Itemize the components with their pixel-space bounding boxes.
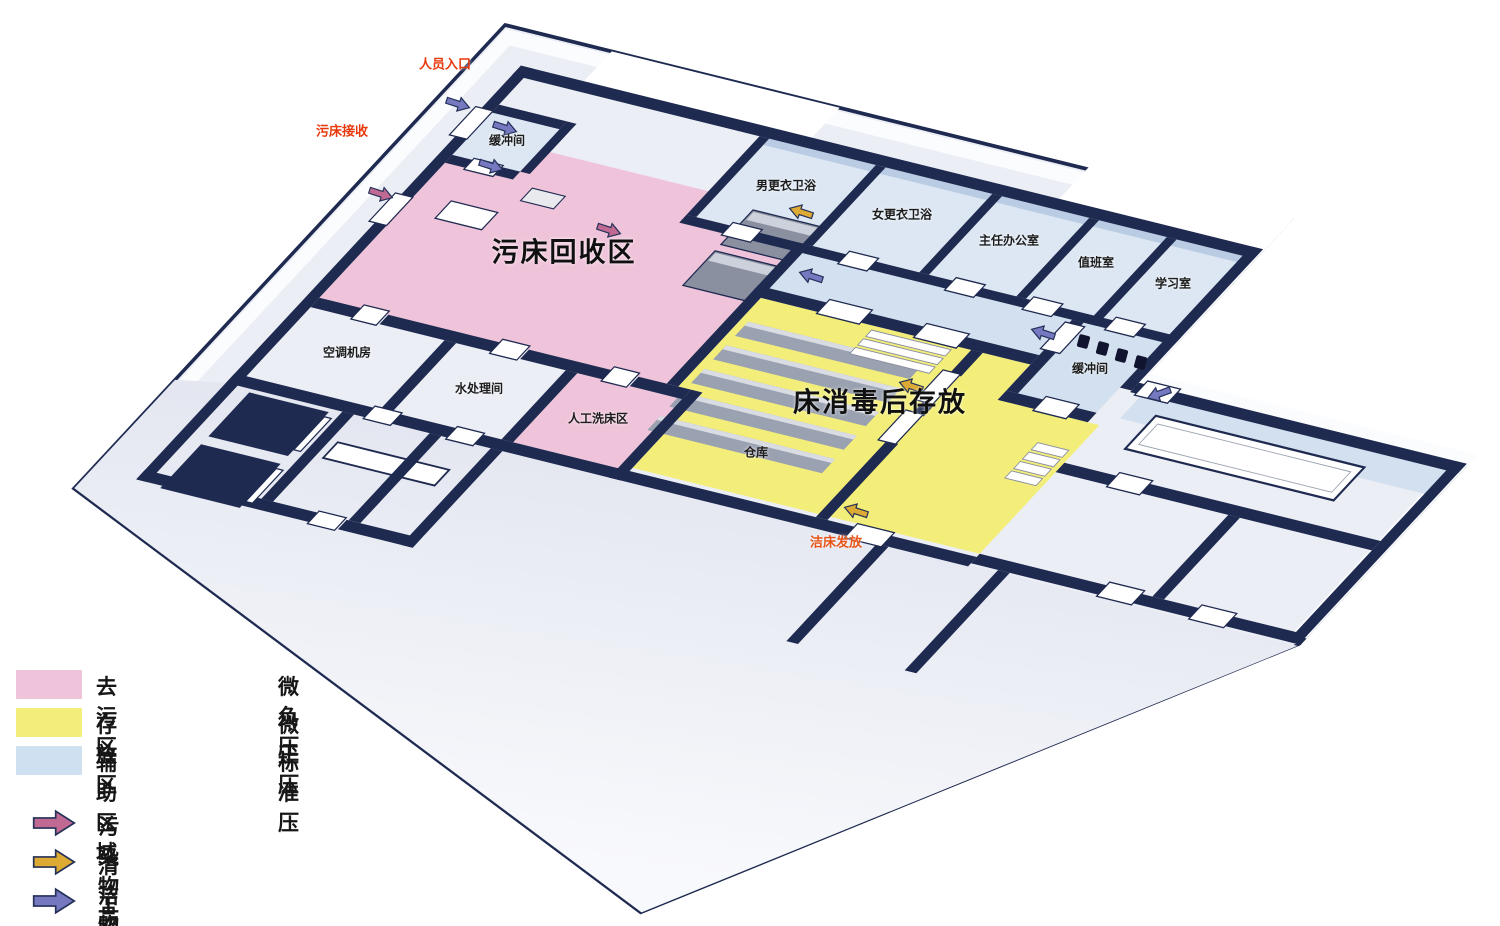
legend-swatch-storage bbox=[16, 708, 82, 737]
zone-label-dirty-bed-recycling: 污床回收区 bbox=[492, 231, 637, 270]
clean-bed-dispatch-label: 洁床发放 bbox=[810, 532, 862, 551]
dirty-bed-receiving-label: 污床接收 bbox=[316, 121, 368, 140]
room-label-mens-changing: 男更衣卫浴 bbox=[756, 177, 816, 194]
floorplan-stage: 人员入口 污床接收 洁床发放 缓冲间 污床回收区 男更衣卫浴 女更衣卫浴 主任办… bbox=[0, 0, 1500, 926]
room-label-warehouse: 仓库 bbox=[744, 444, 768, 461]
room-label-duty-room: 值班室 bbox=[1078, 254, 1114, 271]
room-label-study-room: 学习室 bbox=[1155, 275, 1191, 292]
room-label-buffer-right: 缓冲间 bbox=[1072, 360, 1108, 377]
clean-arrow-icon bbox=[32, 847, 76, 877]
staff-arrow-icon bbox=[32, 886, 76, 916]
room-label-director-office: 主任办公室 bbox=[979, 232, 1039, 249]
legend-flow-label: 工作人员 bbox=[98, 889, 119, 926]
legend-swatch-auxiliary bbox=[16, 746, 82, 775]
plan-projection bbox=[0, 19, 1500, 926]
legend-pressure-label: 标准压 bbox=[278, 747, 299, 837]
zone-label-bed-storage: 床消毒后存放 bbox=[793, 381, 967, 420]
staff-entrance-label: 人员入口 bbox=[419, 54, 471, 73]
room-label-hvac: 空调机房 bbox=[323, 344, 371, 361]
legend-swatch-decontamination bbox=[16, 670, 82, 699]
room-label-manual-washing: 人工洗床区 bbox=[568, 410, 628, 427]
building-floorplan bbox=[0, 0, 1500, 926]
room-label-water-treatment: 水处理间 bbox=[455, 380, 503, 397]
room-label-buffer-left: 缓冲间 bbox=[489, 132, 525, 149]
room-label-womens-changing: 女更衣卫浴 bbox=[872, 206, 932, 223]
contaminated-arrow-icon bbox=[32, 808, 76, 838]
